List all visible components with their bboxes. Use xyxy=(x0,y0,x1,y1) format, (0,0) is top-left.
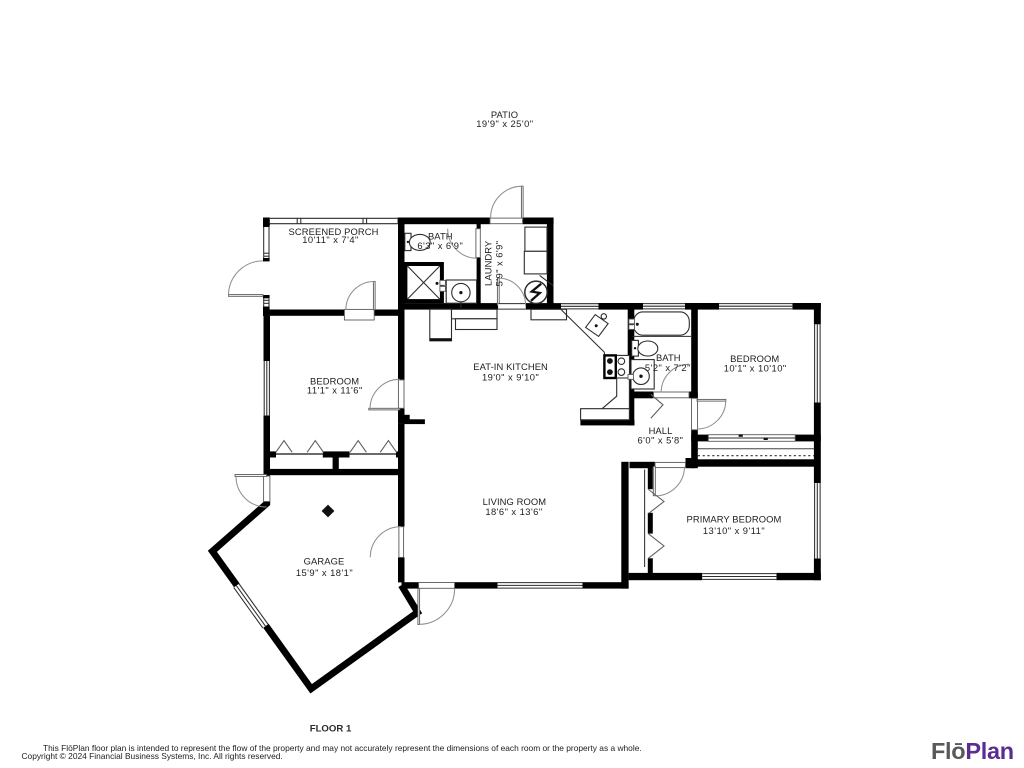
svg-text:FLOOR 1: FLOOR 1 xyxy=(310,723,352,734)
svg-text:LAUNDRY: LAUNDRY xyxy=(483,240,494,286)
svg-text:13'10" x 9'11": 13'10" x 9'11" xyxy=(703,525,765,536)
svg-text:18'6" x 13'6": 18'6" x 13'6" xyxy=(485,506,542,517)
svg-text:6'3" x 6'9": 6'3" x 6'9" xyxy=(417,240,463,251)
svg-text:10'1" x 10'10": 10'1" x 10'10" xyxy=(724,363,787,374)
svg-text:6'0" x 5'8": 6'0" x 5'8" xyxy=(638,435,684,446)
svg-text:FlōPlan: FlōPlan xyxy=(931,738,1014,764)
svg-text:EAT-IN KITCHEN: EAT-IN KITCHEN xyxy=(473,361,548,372)
svg-text:19'9" x 25'0": 19'9" x 25'0" xyxy=(476,118,533,129)
svg-text:5'9" x 6'9": 5'9" x 6'9" xyxy=(494,240,505,286)
svg-text:10'11" x 7'4": 10'11" x 7'4" xyxy=(302,234,359,245)
svg-text:11'1" x 11'6": 11'1" x 11'6" xyxy=(307,385,363,396)
svg-text:GARAGE: GARAGE xyxy=(304,556,345,567)
svg-text:Copyright © 2024 Financial Bus: Copyright © 2024 Financial Business Syst… xyxy=(22,751,283,761)
svg-text:15'9" x 18'1": 15'9" x 18'1" xyxy=(296,567,353,578)
svg-text:5'2" x 7'2": 5'2" x 7'2" xyxy=(645,362,691,373)
svg-text:PRIMARY BEDROOM: PRIMARY BEDROOM xyxy=(687,514,782,525)
svg-text:19'0" x 9'10": 19'0" x 9'10" xyxy=(482,372,539,383)
